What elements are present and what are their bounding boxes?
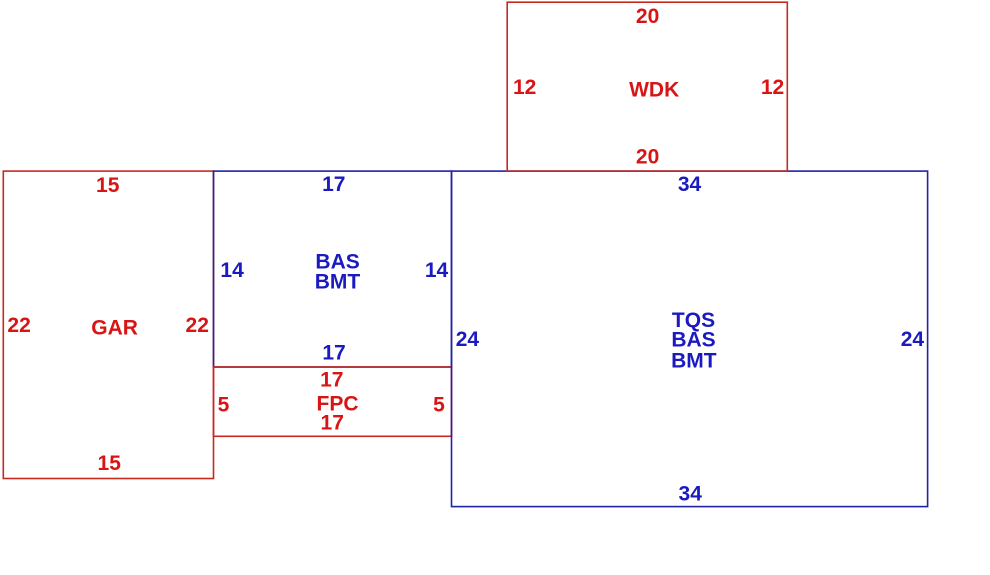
svg-text:17: 17 [322,173,345,196]
svg-text:22: 22 [186,314,209,337]
svg-text:22: 22 [7,314,30,337]
svg-text:34: 34 [678,173,702,196]
svg-text:24: 24 [901,328,925,351]
svg-text:12: 12 [513,76,536,99]
svg-text:20: 20 [636,146,659,169]
svg-text:BMT: BMT [315,270,361,293]
svg-text:GAR: GAR [91,316,138,339]
svg-text:20: 20 [636,5,659,28]
svg-text:15: 15 [96,174,120,197]
svg-text:34: 34 [679,482,703,505]
svg-text:14: 14 [220,259,244,282]
svg-text:BMT: BMT [671,349,717,372]
svg-text:15: 15 [98,452,122,475]
svg-text:5: 5 [218,394,230,417]
svg-text:17: 17 [320,368,343,391]
svg-text:17: 17 [322,341,345,364]
svg-text:17: 17 [321,411,344,434]
svg-text:24: 24 [456,328,480,351]
svg-text:WDK: WDK [629,79,679,102]
svg-text:12: 12 [761,76,784,99]
svg-text:14: 14 [425,259,449,282]
svg-text:5: 5 [433,394,445,417]
svg-text:BAS: BAS [671,329,715,352]
